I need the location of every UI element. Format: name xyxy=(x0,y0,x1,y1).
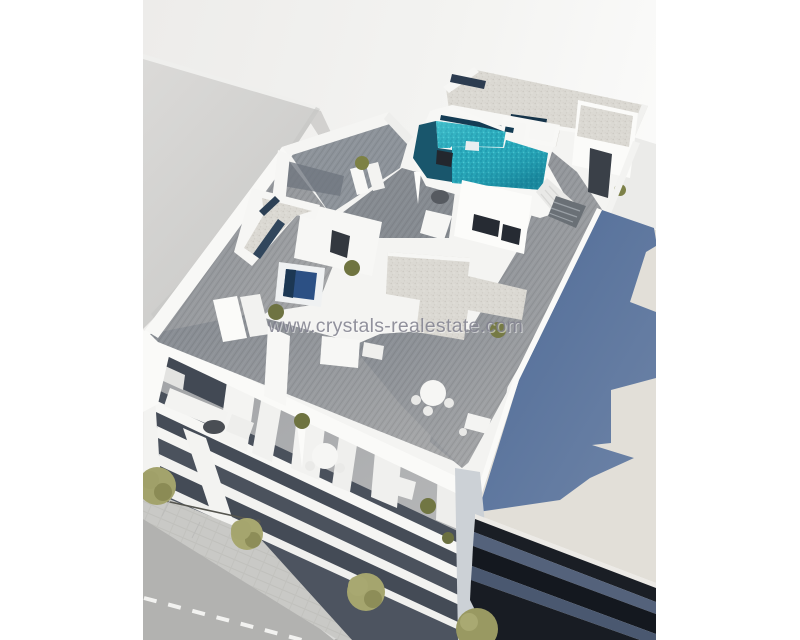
svg-text:www.crystals-realestate.com: www.crystals-realestate.com xyxy=(267,315,523,337)
